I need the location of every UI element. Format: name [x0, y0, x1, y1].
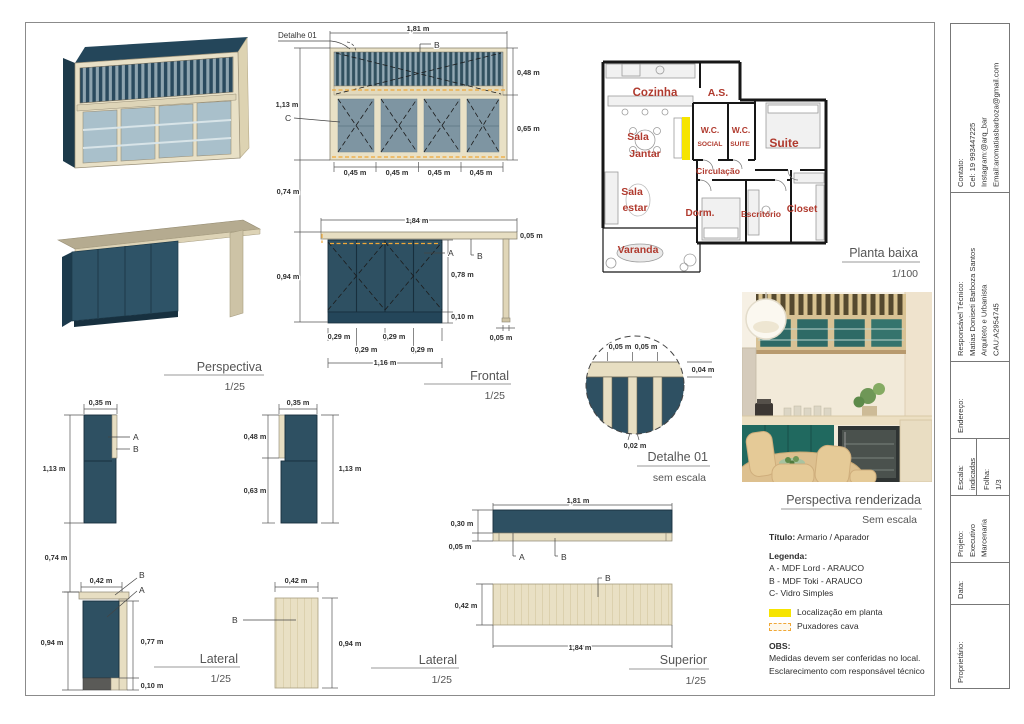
legend-location-row: Localização em planta — [769, 606, 951, 620]
title-block: Contato: Cel: 19 993447225 Instagram:@ar… — [950, 23, 1010, 689]
contato-instagram: Instagram:@arq_bar — [979, 29, 991, 187]
dim-lu2-bottom: 0,63 m — [244, 486, 267, 495]
dim-fl-height: 0,94 m — [277, 272, 300, 281]
dim-fl-door1: 0,29 m — [328, 332, 351, 341]
dim-lu1-height: 1,13 m — [43, 464, 66, 473]
folha-value: 1/3 — [993, 444, 1005, 490]
room-wc-suite-2: SUITE — [730, 141, 750, 148]
dim-fl-top-thickness: 0,05 m — [520, 231, 543, 240]
marker-b-shelf: B — [561, 552, 567, 562]
contato-email: Email:aromatiasbarboza@gmail.com — [990, 29, 1002, 187]
dim-fl-door3: 0,29 m — [383, 332, 406, 341]
room-escritorio: Escritório — [741, 209, 781, 219]
lateral-lower-view — [79, 592, 129, 690]
titleblock-escala-folha: Escala: indicadas Folha: 1/3 — [951, 439, 1009, 496]
frontal-lower-leg — [503, 239, 509, 319]
scale-lateral2: 1/25 — [432, 674, 453, 686]
dim-fu-height: 1,13 m — [276, 100, 299, 109]
room-sala-estar-1: Sala — [621, 186, 643, 198]
dim-fu-width: 1,81 m — [407, 24, 430, 33]
detail-callout-label: Detalhe 01 — [278, 31, 317, 40]
marker-a-frontal: A — [448, 248, 454, 258]
titleblock-responsavel: Responsável Técnico: Matias Doniseti Bar… — [951, 193, 1009, 362]
projeto-nome: Marcenaria — [979, 501, 991, 557]
dim-ll-door-height: 0,77 m — [141, 637, 164, 646]
frontal-upper-slat-band — [334, 52, 503, 86]
titulo-label: Título: — [769, 532, 795, 542]
marker-b-top: B — [434, 40, 440, 50]
titleblock-data: Data: — [951, 563, 1009, 605]
room-sala-estar-2: estar — [622, 202, 647, 214]
escala-label: Escala: — [955, 444, 967, 490]
endereco-label: Endereço: — [955, 367, 967, 433]
dim-lu2-width: 0,35 m — [287, 398, 310, 407]
title-lateral1: Lateral — [200, 652, 238, 666]
marker-c: C — [285, 113, 291, 123]
legenda-label: Legenda: — [769, 550, 951, 563]
room-dorm: Dorm. — [686, 208, 715, 219]
marker-b-frontal: B — [477, 251, 483, 261]
titleblock-endereco: Endereço: — [951, 362, 1009, 439]
location-label: Localização em planta — [797, 606, 883, 619]
hutch-3d-view — [63, 37, 249, 168]
dim-detail-spacing1: 0,05 m — [609, 342, 632, 351]
projeto-tipo: Executivo — [967, 501, 979, 557]
legend-item-b: B - MDF Toki - ARAUCO — [769, 575, 951, 588]
room-wc-social-2: SOCIAL — [698, 141, 723, 148]
dim-bf-thickness: 0,05 m — [449, 542, 472, 551]
dim-detail-thickness: 0,04 m — [692, 365, 715, 374]
obs-label: OBS: — [769, 640, 951, 653]
frontal-upper-view — [330, 48, 507, 160]
superior-view — [493, 584, 672, 625]
room-varanda: Varanda — [618, 244, 659, 256]
dim-ll-width: 0,42 m — [90, 576, 113, 585]
scale-planta: 1/100 — [892, 268, 918, 280]
projeto-label: Projeto: — [955, 501, 967, 557]
lateral-panel-view — [275, 598, 318, 688]
dim-fl-plinth: 0,10 m — [451, 312, 474, 321]
responsavel-label: Responsável Técnico: — [955, 198, 967, 356]
dim-fu-door2: 0,45 m — [386, 168, 409, 177]
titleblock-contato: Contato: Cel: 19 993447225 Instagram:@ar… — [951, 24, 1009, 193]
detail-circle-view — [585, 336, 685, 437]
dim-bf-height: 0,30 m — [451, 519, 474, 528]
dim-lu2-top: 0,48 m — [244, 432, 267, 441]
marker-b-superior: B — [605, 573, 611, 583]
frontal-lower-view — [321, 232, 517, 323]
dim-detail-spacing2: 0,05 m — [635, 342, 658, 351]
cabinet-location-highlight — [682, 117, 690, 160]
dim-lp-height: 0,94 m — [339, 639, 362, 648]
escala-cell: Escala: indicadas — [951, 439, 977, 495]
dim-fu-door1: 0,45 m — [344, 168, 367, 177]
dashed-swatch — [769, 623, 791, 631]
titleblock-projeto: Projeto: Executivo Marcenaria — [951, 496, 1009, 563]
legend-item-c: C- Vidro Simples — [769, 587, 951, 600]
handles-label: Puxadores cava — [797, 620, 859, 633]
dim-sp-width: 1,84 m — [569, 643, 592, 652]
title-superior: Superior — [660, 653, 707, 667]
obs-line-1: Medidas devem ser conferidas no local. — [769, 652, 951, 665]
dim-lp-width: 0,42 m — [285, 576, 308, 585]
legend-item-a: A - MDF Lord - ARAUCO — [769, 562, 951, 575]
data-label: Data: — [955, 568, 967, 599]
room-as: A.S. — [708, 87, 729, 99]
responsavel-nome: Matias Doniseti Barboza Santos — [967, 198, 979, 356]
dim-gap2: 0,74 m — [45, 553, 68, 562]
scale-render: Sem escala — [862, 514, 917, 526]
title-lateral2: Lateral — [419, 653, 457, 667]
responsavel-cau: CAU:A2954745 — [990, 198, 1002, 356]
dim-sp-depth: 0,42 m — [455, 601, 478, 610]
obs-line-2: Esclarecimento com responsável técnico — [769, 665, 951, 678]
scale-detalhe: sem escala — [653, 472, 706, 484]
drawing-sheet: 1,81 m 0,48 m 0,65 m 1,13 m 0,45 m 0,45 … — [0, 0, 1024, 724]
room-cozinha: Cozinha — [633, 87, 678, 99]
title-render: Perspectiva renderizada — [786, 493, 921, 507]
dim-fu-top-height: 0,48 m — [517, 68, 540, 77]
room-suite: Suite — [769, 136, 799, 150]
room-sala-jantar-2: Jantar — [629, 148, 661, 160]
dim-fl-cabinet-width: 1,16 m — [374, 358, 397, 367]
rendered-perspective-photo — [736, 292, 932, 504]
dim-detail-slat: 0,02 m — [624, 441, 647, 450]
dim-ll-height: 0,94 m — [41, 638, 64, 647]
scale-perspectiva: 1/25 — [225, 381, 246, 393]
aparador-3d-view — [58, 220, 260, 327]
dim-fl-door-height: 0,78 m — [451, 270, 474, 279]
dim-fu-door3: 0,45 m — [428, 168, 451, 177]
dim-lu2-height: 1,13 m — [339, 464, 362, 473]
titulo-value: Armario / Aparador — [797, 532, 869, 542]
responsavel-titulo: Arquiteto e Urbanista — [979, 198, 991, 356]
yellow-swatch — [769, 609, 791, 617]
dim-fl-width: 1,84 m — [406, 216, 429, 225]
marker-b-panel: B — [232, 615, 238, 625]
dim-bf-width: 1,81 m — [567, 496, 590, 505]
title-perspectiva: Perspectiva — [197, 360, 262, 374]
room-wc-suite-1: W.C. — [732, 125, 750, 135]
room-closet: Closet — [787, 204, 818, 215]
scale-frontal: 1/25 — [485, 390, 506, 402]
titleblock-proprietario: Proprietário: — [951, 605, 1009, 688]
shelf-front-view — [493, 510, 672, 541]
marker-a-lateral-lower: A — [139, 585, 145, 595]
dim-fl-leg-width: 0,05 m — [490, 333, 513, 342]
title-detalhe: Detalhe 01 — [648, 450, 709, 464]
legend-title-row: Título: Armario / Aparador — [769, 531, 951, 544]
scale-lateral1: 1/25 — [211, 673, 232, 685]
marker-b-lateral1: B — [133, 444, 139, 454]
proprietario-label: Proprietário: — [955, 610, 967, 683]
contato-cel: Cel: 19 993447225 — [967, 29, 979, 187]
folha-cell: Folha: 1/3 — [977, 439, 1009, 495]
contato-label: Contato: — [955, 29, 967, 187]
lateral-upper-1 — [84, 415, 117, 523]
dim-fl-door4: 0,29 m — [411, 345, 434, 354]
dim-gap1: 0,74 m — [277, 187, 300, 196]
dim-fu-door-height: 0,65 m — [517, 124, 540, 133]
dim-lu1-width: 0,35 m — [89, 398, 112, 407]
dim-ll-plinth: 0,10 m — [141, 681, 164, 690]
title-frontal: Frontal — [470, 369, 509, 383]
dim-fu-door4: 0,45 m — [470, 168, 493, 177]
room-sala-jantar-1: Sala — [627, 131, 649, 143]
legend-block: Título: Armario / Aparador Legenda: A - … — [769, 531, 951, 677]
lateral-upper-2 — [279, 415, 317, 523]
room-circulacao: Circulação — [696, 166, 740, 176]
dim-fl-door2: 0,29 m — [355, 345, 378, 354]
folha-label: Folha: — [981, 444, 993, 490]
floor-plan: Cozinha A.S. W.C. SOCIAL W.C. SUITE Suit… — [603, 62, 826, 272]
room-wc-social-1: W.C. — [701, 125, 719, 135]
scale-superior: 1/25 — [686, 675, 707, 687]
legend-handles-row: Puxadores cava — [769, 620, 951, 634]
marker-a-lateral1: A — [133, 432, 139, 442]
title-planta: Planta baixa — [849, 246, 918, 260]
marker-b-lateral-lower: B — [139, 570, 145, 580]
marker-a-shelf: A — [519, 552, 525, 562]
